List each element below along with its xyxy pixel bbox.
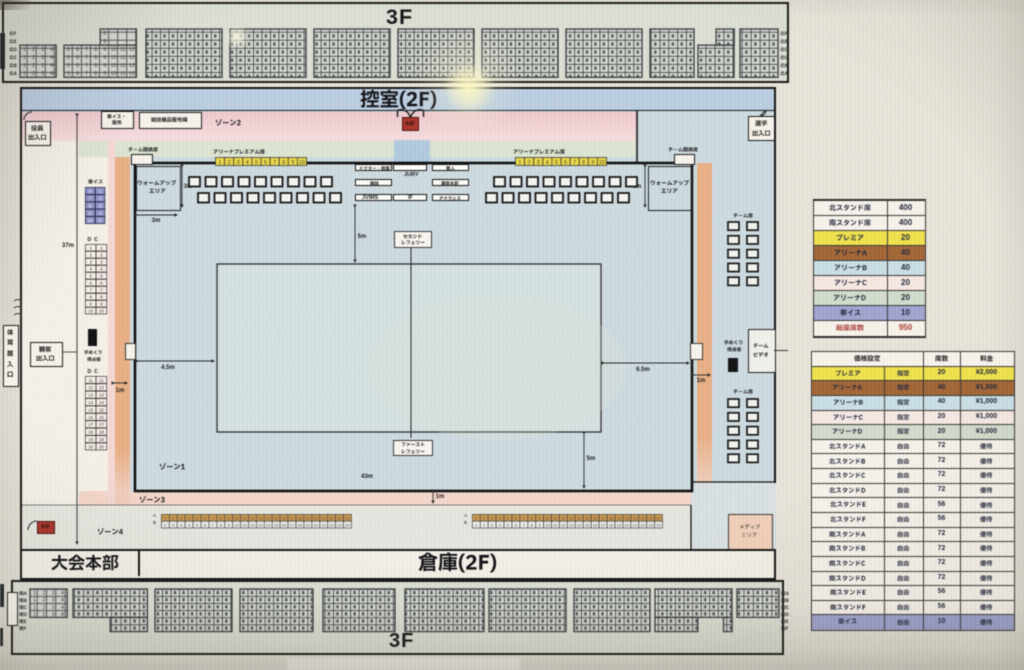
- svg-text:13: 13: [98, 393, 103, 398]
- svg-text:21: 21: [632, 523, 637, 528]
- svg-text:21: 21: [321, 516, 326, 521]
- svg-text:22: 22: [329, 516, 334, 521]
- svg-text:15: 15: [585, 523, 590, 528]
- svg-text:12: 12: [561, 516, 566, 521]
- svg-text:24: 24: [656, 523, 661, 528]
- svg-text:15: 15: [98, 407, 103, 412]
- svg-text:16: 16: [88, 415, 93, 420]
- svg-text:7: 7: [273, 159, 276, 165]
- svg-text:23: 23: [648, 523, 653, 528]
- svg-text:16: 16: [282, 523, 287, 528]
- svg-text:5: 5: [98, 218, 101, 223]
- svg-text:18: 18: [298, 523, 303, 528]
- svg-text:10: 10: [545, 523, 550, 528]
- svg-text:3: 3: [98, 203, 101, 208]
- svg-text:5: 5: [255, 159, 258, 165]
- svg-text:16: 16: [282, 516, 287, 521]
- svg-text:24: 24: [345, 516, 350, 521]
- svg-text:12: 12: [561, 523, 566, 528]
- svg-text:4: 4: [98, 210, 101, 215]
- svg-text:13: 13: [258, 523, 263, 528]
- svg-text:20: 20: [314, 516, 319, 521]
- svg-text:23: 23: [648, 516, 653, 521]
- svg-text:6: 6: [88, 188, 91, 193]
- svg-text:6: 6: [564, 159, 567, 165]
- svg-text:11: 11: [88, 378, 93, 383]
- svg-text:13: 13: [258, 516, 263, 521]
- svg-text:17: 17: [88, 422, 93, 427]
- svg-text:14: 14: [266, 516, 271, 521]
- svg-text:9: 9: [88, 210, 91, 215]
- svg-text:12: 12: [88, 385, 93, 390]
- svg-text:14: 14: [98, 400, 103, 405]
- svg-text:7: 7: [573, 159, 576, 165]
- svg-text:20: 20: [625, 516, 630, 521]
- svg-text:10: 10: [88, 308, 93, 313]
- svg-text:8: 8: [582, 159, 585, 165]
- svg-text:24: 24: [345, 523, 350, 528]
- svg-text:22: 22: [329, 523, 334, 528]
- svg-text:20: 20: [88, 444, 93, 449]
- svg-text:18: 18: [609, 516, 614, 521]
- svg-text:9: 9: [291, 159, 294, 165]
- svg-text:24: 24: [656, 516, 661, 521]
- svg-text:12: 12: [250, 523, 255, 528]
- svg-text:1: 1: [219, 159, 222, 165]
- svg-text:23: 23: [337, 523, 342, 528]
- svg-text:8: 8: [282, 159, 285, 165]
- svg-text:17: 17: [98, 422, 103, 427]
- svg-text:22: 22: [640, 516, 645, 521]
- svg-text:12: 12: [98, 385, 103, 390]
- svg-text:13: 13: [569, 516, 574, 521]
- svg-text:17: 17: [290, 516, 295, 521]
- svg-text:8: 8: [88, 203, 91, 208]
- svg-text:17: 17: [601, 523, 606, 528]
- svg-text:11: 11: [99, 378, 104, 383]
- svg-text:17: 17: [290, 523, 295, 528]
- svg-text:1: 1: [519, 159, 522, 165]
- svg-text:21: 21: [321, 523, 326, 528]
- svg-text:18: 18: [609, 523, 614, 528]
- svg-text:19: 19: [306, 523, 311, 528]
- svg-text:15: 15: [88, 407, 93, 412]
- svg-text:13: 13: [569, 523, 574, 528]
- svg-text:18: 18: [98, 430, 103, 435]
- svg-text:10: 10: [299, 159, 305, 165]
- svg-text:10: 10: [234, 523, 239, 528]
- svg-text:19: 19: [617, 523, 622, 528]
- svg-text:20: 20: [314, 523, 319, 528]
- svg-text:14: 14: [266, 523, 271, 528]
- svg-text:18: 18: [88, 430, 93, 435]
- svg-text:2: 2: [528, 159, 531, 165]
- svg-text:3: 3: [237, 159, 240, 165]
- svg-text:4: 4: [246, 159, 249, 165]
- svg-text:14: 14: [88, 400, 93, 405]
- svg-text:18: 18: [298, 516, 303, 521]
- svg-text:9: 9: [591, 159, 594, 165]
- svg-text:3: 3: [537, 159, 540, 165]
- svg-text:10: 10: [234, 516, 239, 521]
- svg-text:20: 20: [625, 523, 630, 528]
- svg-text:19: 19: [88, 437, 93, 442]
- svg-text:5: 5: [555, 159, 558, 165]
- svg-text:14: 14: [577, 523, 582, 528]
- svg-text:2: 2: [98, 196, 101, 201]
- svg-text:1: 1: [98, 188, 101, 193]
- svg-text:22: 22: [640, 523, 645, 528]
- svg-text:10: 10: [599, 159, 605, 165]
- svg-text:19: 19: [306, 516, 311, 521]
- svg-text:19: 19: [98, 437, 103, 442]
- svg-text:2: 2: [228, 159, 231, 165]
- svg-text:4: 4: [546, 159, 549, 165]
- svg-text:23: 23: [337, 516, 342, 521]
- svg-text:19: 19: [617, 516, 622, 521]
- svg-text:15: 15: [274, 516, 279, 521]
- svg-text:20: 20: [98, 444, 103, 449]
- svg-text:15: 15: [274, 523, 279, 528]
- svg-text:14: 14: [577, 516, 582, 521]
- svg-text:10: 10: [87, 218, 93, 223]
- svg-text:21: 21: [632, 516, 637, 521]
- svg-text:7: 7: [88, 196, 91, 201]
- svg-text:12: 12: [250, 516, 255, 521]
- svg-text:6: 6: [264, 159, 267, 165]
- svg-text:10: 10: [98, 308, 103, 313]
- svg-text:16: 16: [593, 516, 598, 521]
- svg-text:16: 16: [98, 415, 103, 420]
- svg-text:15: 15: [585, 516, 590, 521]
- svg-text:10: 10: [545, 516, 550, 521]
- svg-text:13: 13: [88, 393, 93, 398]
- svg-text:17: 17: [601, 516, 606, 521]
- svg-text:16: 16: [593, 523, 598, 528]
